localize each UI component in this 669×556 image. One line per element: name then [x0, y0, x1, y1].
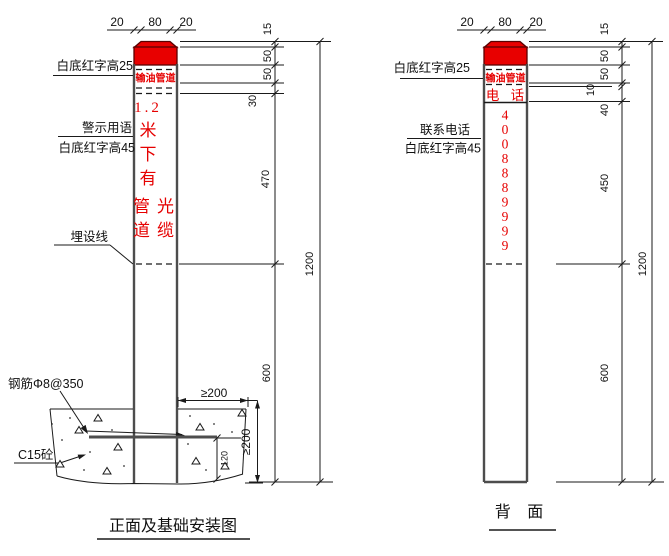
front-dim-15: 15 [262, 23, 274, 35]
front-band-label: 白底红字高25 [57, 58, 133, 73]
drawing-canvas: 20 80 20 输油管道 1.2 米 下 有 管 光 道 [0, 0, 669, 556]
burial-line-label: 埋设线 [70, 229, 108, 244]
warning-char-2: 下 [140, 145, 157, 164]
back-view-title: 背 面 [495, 503, 549, 521]
phone-digit: 4 [502, 108, 509, 123]
front-top-dimension: 20 80 20 [107, 15, 196, 34]
warning-char-4b: 光 [157, 197, 174, 216]
front-post: 输油管道 1.2 米 下 有 管 光 道 缆 [133, 42, 177, 484]
front-dim-50b: 50 [262, 68, 274, 80]
back-top-dimension: 20 80 20 [457, 15, 546, 34]
warning-line-depth: 1.2 [134, 100, 162, 116]
front-warning-label-top: 警示用语 [82, 120, 132, 135]
warning-char-5a: 道 [133, 221, 150, 240]
front-warning-text: 1.2 米 下 有 管 光 道 缆 [133, 100, 174, 240]
back-dim-40: 40 [599, 104, 611, 116]
phone-digit: 8 [502, 151, 509, 166]
foundation-step-value: 120 [220, 451, 230, 466]
front-cap-body [134, 47, 177, 65]
front-view-title: 正面及基础安装图 [109, 517, 237, 535]
phone-digit: 9 [502, 238, 509, 253]
rebar-label: 钢筋Φ8@350 [8, 376, 84, 391]
front-dim-30: 30 [247, 95, 259, 107]
foundation-width-dim: ≥200 [178, 386, 258, 407]
warning-char-3: 有 [140, 169, 157, 188]
phone-digit: 9 [502, 209, 509, 224]
back-cap-body [484, 47, 527, 65]
back-top-dim-mid: 80 [498, 15, 512, 29]
phone-digits: 4 0 0 8 8 8 9 9 9 9 [502, 108, 509, 254]
front-top-dim-right: 20 [179, 15, 193, 29]
back-dim-600: 600 [599, 364, 611, 382]
back-band-text: 输油管道 [486, 72, 526, 85]
warning-char-4a: 管 [133, 197, 150, 216]
back-top-dim-right: 20 [529, 15, 543, 29]
front-dim-50a: 50 [262, 50, 274, 62]
foundation-width-value: ≥200 [201, 386, 228, 400]
contact-label-top: 联系电话 [420, 123, 470, 137]
back-dim-10: 10 [585, 84, 597, 96]
foundation: ≥200 ≥200 120 [50, 386, 263, 484]
front-top-dim-left: 20 [110, 15, 124, 29]
back-dim-15: 15 [599, 23, 611, 35]
back-dim-1200: 1200 [637, 252, 649, 276]
phone-label-text: 电 话 [486, 88, 528, 103]
warning-char-5b: 缆 [157, 221, 174, 240]
foundation-depth-value: ≥200 [239, 428, 253, 455]
front-warning-label-bottom: 白底红字高45 [59, 140, 135, 155]
phone-digit: 9 [502, 224, 509, 239]
warning-char-1: 米 [140, 121, 157, 140]
back-dimension-chain: 15 50 50 10 40 450 600 1200 [529, 23, 664, 486]
pipeline-marker-drawing: 20 80 20 输油管道 1.2 米 下 有 管 光 道 [0, 0, 669, 556]
contact-label-bottom: 白底红字高45 [405, 141, 481, 156]
back-view: 20 80 20 输油管道 电 话 4 0 0 8 8 8 [394, 15, 664, 530]
concrete-label: C15砼 [18, 448, 54, 462]
front-dim-1200: 1200 [304, 252, 316, 276]
back-dim-450: 450 [599, 174, 611, 192]
front-dimension-chain: 15 50 50 30 470 600 1200 [179, 23, 333, 486]
foundation-step-dim: 120 [214, 435, 230, 483]
back-callouts: 白底红字高25 联系电话 白底红字高45 [394, 60, 483, 156]
phone-digit: 0 [502, 137, 509, 152]
phone-digit: 8 [502, 180, 509, 195]
phone-digit: 0 [502, 122, 509, 137]
phone-digit: 9 [502, 195, 509, 210]
front-callouts: 白底红字高25 警示用语 白底红字高45 埋设线 钢筋Φ8@350 C15砼 [8, 58, 185, 463]
back-top-dim-left: 20 [460, 15, 474, 29]
front-top-dim-mid: 80 [148, 15, 162, 29]
back-dim-50a: 50 [599, 50, 611, 62]
back-post: 输油管道 电 话 4 0 0 8 8 8 9 9 9 9 [484, 42, 528, 483]
front-band-text: 输油管道 [136, 72, 176, 85]
back-dim-50b: 50 [599, 68, 611, 80]
front-dim-470: 470 [260, 170, 272, 188]
foundation-bottom [57, 474, 243, 484]
front-view: 20 80 20 输油管道 1.2 米 下 有 管 光 道 [8, 15, 333, 539]
phone-digit: 8 [502, 166, 509, 181]
front-dim-600: 600 [261, 364, 273, 382]
back-band-label: 白底红字高25 [394, 60, 470, 75]
